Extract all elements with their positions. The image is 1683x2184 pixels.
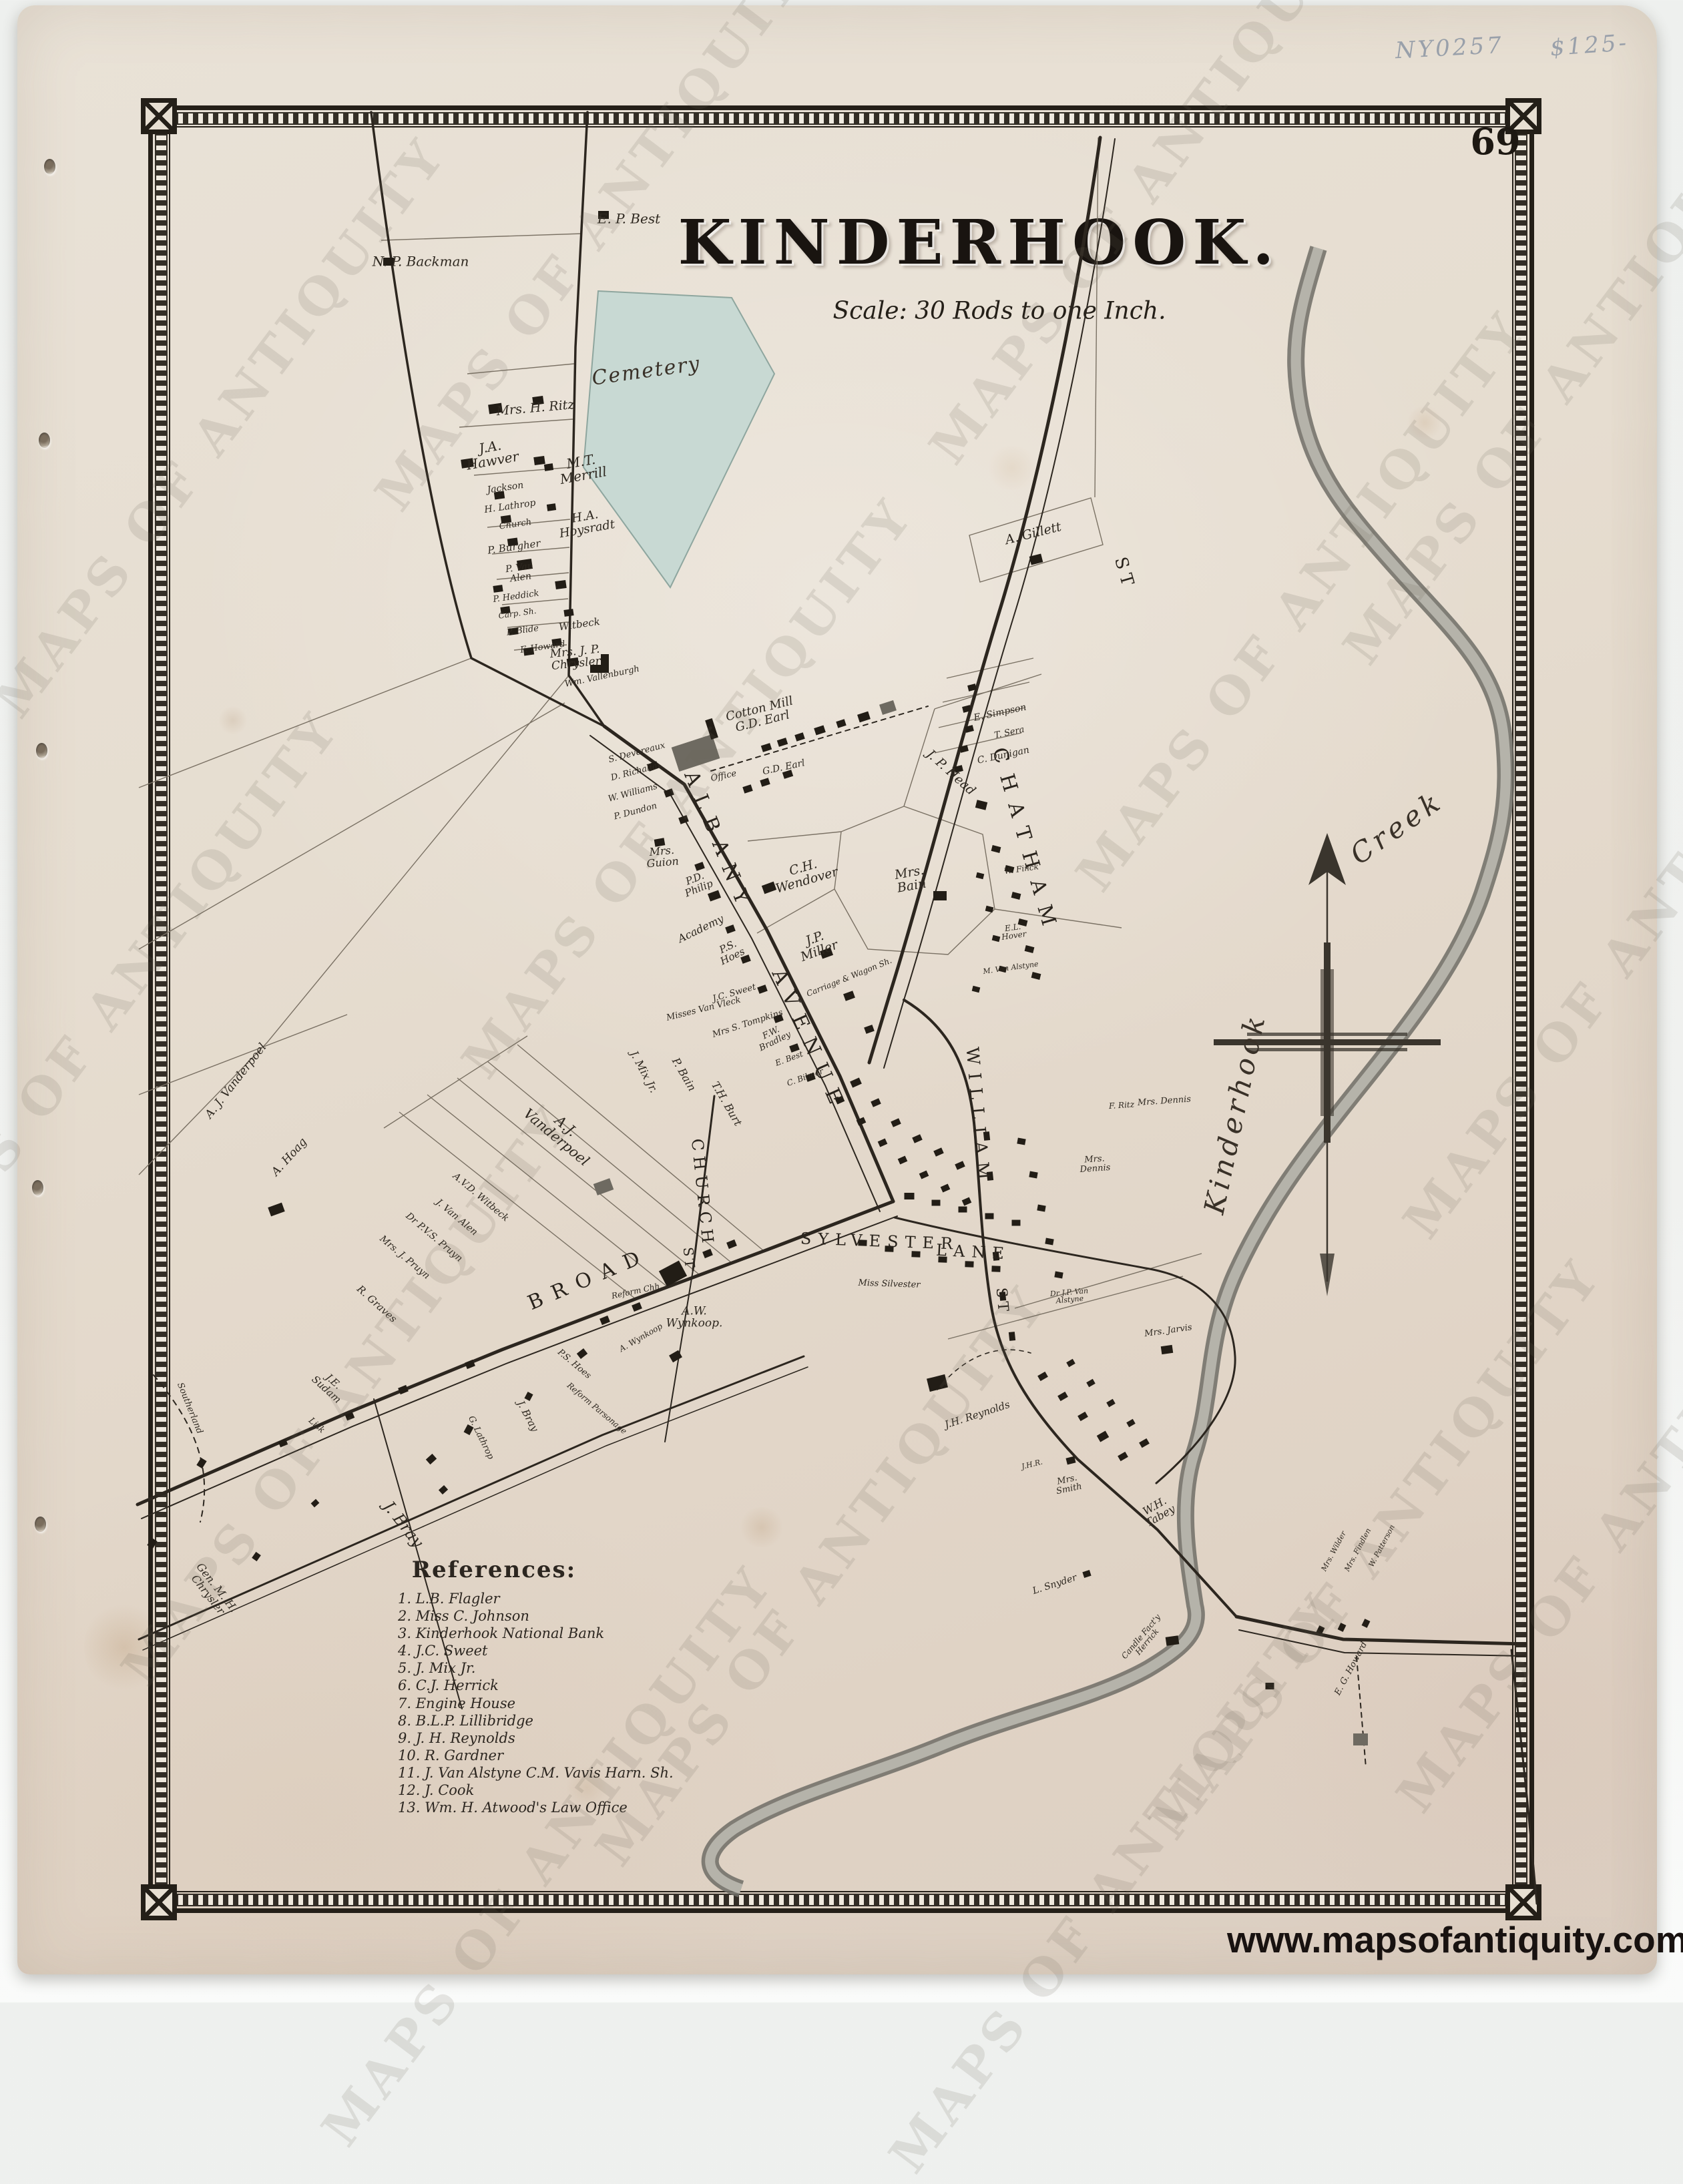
property-label: E. Best bbox=[774, 1050, 804, 1068]
property-label: P. Dundon bbox=[613, 802, 658, 822]
property-label: A. J. Vanderpoel bbox=[204, 1042, 269, 1121]
property-label: C.H. Wendover bbox=[770, 853, 839, 896]
property-label: Lisk bbox=[306, 1416, 326, 1435]
property-label: T. Sera bbox=[993, 726, 1025, 741]
property-label: Mrs. Dennis bbox=[1079, 1154, 1110, 1174]
property-label: Office bbox=[710, 769, 738, 783]
property-label: J. Van Alen bbox=[434, 1197, 479, 1238]
property-label: D. Richalia bbox=[610, 762, 659, 783]
property-label: E.L. Hover bbox=[1000, 922, 1027, 942]
property-label: W. Finck bbox=[1004, 862, 1039, 876]
property-label: E. G. Howard bbox=[1333, 1641, 1369, 1697]
property-label: Reform Parsonage bbox=[565, 1381, 628, 1436]
property-label: J.H.R. bbox=[1021, 1458, 1043, 1471]
property-label: Witbeck bbox=[558, 617, 601, 633]
property-label: R. Graves bbox=[354, 1284, 398, 1324]
property-label: Mrs. Guion bbox=[646, 844, 680, 869]
property-label: Mrs. Bain bbox=[894, 864, 928, 896]
property-label: H. Lathrop bbox=[484, 498, 537, 515]
property-label: M.T. Merrill bbox=[557, 451, 608, 486]
property-label: Mrs. Jarvis bbox=[1144, 1323, 1193, 1338]
property-label: P. Blide bbox=[506, 624, 539, 637]
property-label: Misses Van Vleck bbox=[666, 996, 742, 1023]
property-label: P.S. Hoes bbox=[555, 1348, 592, 1380]
property-label: J. Mix Jr. bbox=[628, 1049, 660, 1095]
property-label: G. Lathrop bbox=[466, 1414, 495, 1460]
property-label: Candle Fact'y Herrick bbox=[1120, 1613, 1168, 1665]
property-label: A.J. Vanderpoel bbox=[521, 1095, 601, 1169]
property-label: J. Bray bbox=[381, 1498, 427, 1551]
property-label: Carriage & Wagon Sh. bbox=[805, 957, 893, 999]
property-label: Carp. Sh. bbox=[498, 607, 537, 620]
property-label: Miss Silvester bbox=[858, 1279, 920, 1290]
property-label: E. P. Best bbox=[597, 212, 660, 226]
property-label: Mrs. J. P. Chrysler bbox=[549, 644, 602, 673]
property-label: A. Gillett bbox=[1004, 521, 1063, 547]
property-label: Mrs. Dennis bbox=[1138, 1095, 1192, 1107]
property-label: L. Snyder bbox=[1031, 1573, 1078, 1596]
property-label: H.A. Hoysradt bbox=[556, 506, 616, 540]
property-label: E. Simpson bbox=[973, 703, 1027, 724]
property-label: J. P. Head bbox=[924, 748, 978, 798]
property-label: A. Wynkoop bbox=[618, 1322, 664, 1354]
property-label: Dr J.P. Van Alstyne bbox=[1049, 1287, 1089, 1306]
property-label: W. Williams bbox=[608, 782, 659, 804]
property-label: J. Bray bbox=[515, 1399, 539, 1433]
property-label: P. Bain bbox=[670, 1056, 698, 1093]
property-label: F. Ritz bbox=[1109, 1100, 1135, 1110]
property-label: G.D. Earl bbox=[762, 758, 806, 777]
property-label: S. Devereaux bbox=[608, 741, 666, 765]
seller-website-watermark: www.mapsofantiquity.com bbox=[1227, 1918, 1683, 1961]
property-label: Mrs. H. Ritz bbox=[496, 398, 575, 419]
property-label: P. Burgher bbox=[487, 539, 541, 557]
property-label: J.A. Hawver bbox=[463, 436, 519, 473]
property-label: M. Van Alstyne bbox=[983, 961, 1039, 976]
property-label: P.S. Hoes bbox=[714, 937, 746, 967]
property-label: Mrs. Smith bbox=[1053, 1473, 1083, 1496]
property-label: F.W. Bradley bbox=[754, 1022, 792, 1053]
property-label: N. P. Backman bbox=[373, 255, 469, 269]
property-label: J.P. Miller bbox=[794, 926, 840, 965]
handwritten-catalog-id: NY0257 bbox=[1395, 32, 1505, 64]
property-label: T.H. Burt bbox=[709, 1080, 743, 1128]
property-label: P.D. Philip bbox=[680, 868, 714, 898]
property-label: P. Van Alen bbox=[505, 561, 535, 585]
property-label: Cotton Mill G.D. Earl bbox=[725, 695, 798, 736]
property-label: A.W. Wynkoop. bbox=[666, 1306, 723, 1329]
property-label: W.H. Tabey bbox=[1138, 1494, 1177, 1529]
property-label: C. Dunigan bbox=[977, 746, 1030, 766]
property-label-layer: E. P. BestN. P. BackmanMrs. H. RitzJ.A. … bbox=[0, 0, 1683, 2002]
property-label: Academy bbox=[676, 913, 726, 944]
property-label: Southerland bbox=[176, 1382, 204, 1435]
property-label: Church bbox=[499, 518, 532, 531]
property-label: Reform Chh. bbox=[611, 1282, 663, 1300]
property-label: Gen. M. H. Chrysler bbox=[186, 1561, 240, 1621]
property-label: Mrs. J. Pruyn bbox=[378, 1234, 431, 1282]
property-label: P. Heddick bbox=[493, 589, 540, 604]
property-label: A. Hoag bbox=[270, 1136, 309, 1178]
photo-of-antique-map: { "photo": { "handwritten_note": {"catal… bbox=[0, 0, 1683, 2002]
property-label: J.E. Sudam bbox=[310, 1366, 350, 1405]
property-label: J.H. Reynolds bbox=[943, 1400, 1011, 1430]
property-label: C. Bilmer bbox=[786, 1067, 824, 1087]
property-label: Jackson bbox=[487, 481, 524, 495]
handwritten-price: $125- bbox=[1549, 29, 1630, 61]
